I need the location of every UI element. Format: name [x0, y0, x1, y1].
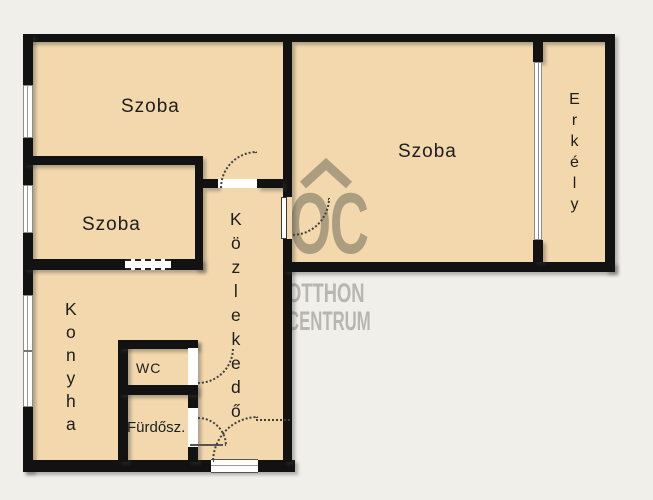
window-kitchen-passthrough	[125, 259, 171, 270]
wall-balcony-stub-bottom	[533, 240, 543, 262]
wall-kitchen-top	[23, 259, 203, 270]
wall-between-bedrooms	[23, 156, 197, 165]
door-wc	[188, 348, 198, 385]
room-label-balcony: Erkély	[564, 91, 584, 217]
wall-balcony-stub-top	[533, 42, 543, 62]
window-balcony-glasswall	[534, 62, 542, 240]
floorplan-canvas: OC OTTHON CENTRUM Szoba Szoba Szoba WC F…	[0, 0, 653, 500]
watermark-text-line2: CENTRUM	[287, 308, 371, 335]
room-label-bedroom1: Szoba	[121, 96, 180, 118]
wall-wc-top	[118, 340, 198, 349]
door-bathroom	[188, 408, 198, 447]
room-label-kitchen: Konyha	[59, 299, 81, 437]
wall-mid-vertical	[283, 42, 292, 462]
room-label-hallway: Közlekedő	[224, 209, 246, 425]
wall-bedroom2-right	[195, 156, 203, 270]
wall-main-room-bottom	[283, 262, 615, 272]
window-bedroom2	[23, 185, 33, 233]
room-label-bathroom: Fürdősz.	[127, 419, 185, 436]
window-kitchen-divider	[24, 350, 32, 352]
wall-outer-top	[23, 34, 615, 42]
window-bedroom1	[23, 85, 33, 138]
door-main-room-leaf	[281, 197, 287, 239]
wall-wc-left	[118, 340, 128, 462]
door-entrance-sill-line	[211, 465, 258, 466]
wall-hall-top-left	[203, 179, 218, 188]
wall-balcony-right	[605, 42, 615, 272]
room-label-bedroom2: Szoba	[82, 214, 141, 236]
room-label-wc: WC	[136, 360, 161, 376]
door-arc-entrance-tail	[256, 419, 290, 421]
watermark-text-line1: OTTHON	[287, 280, 365, 307]
wall-hall-top-right	[257, 179, 283, 188]
wall-wc-bath-divider	[118, 385, 198, 395]
room-label-main-room: Szoba	[398, 141, 457, 163]
